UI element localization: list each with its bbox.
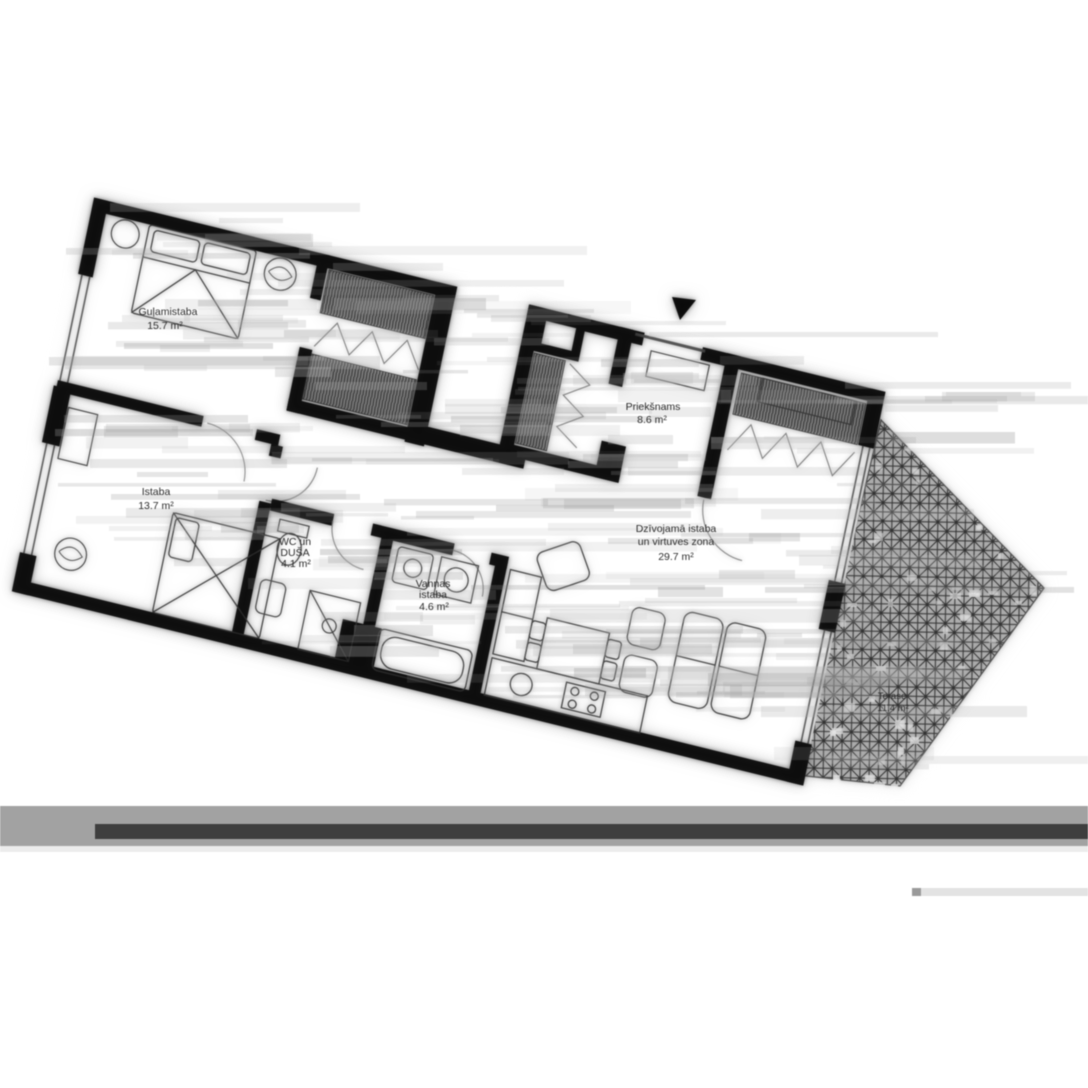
svg-text:un virtuves zona: un virtuves zona bbox=[638, 536, 715, 548]
svg-text:Terase: Terase bbox=[878, 691, 907, 702]
svg-text:Istaba: Istaba bbox=[142, 486, 171, 498]
svg-text:29.7 m²: 29.7 m² bbox=[658, 551, 694, 563]
svg-text:11.4 m²: 11.4 m² bbox=[877, 703, 909, 714]
svg-text:4.6 m²: 4.6 m² bbox=[419, 601, 449, 613]
svg-text:Dzīvojamā istaba: Dzīvojamā istaba bbox=[636, 523, 717, 535]
svg-text:4.1 m²: 4.1 m² bbox=[281, 558, 311, 570]
svg-text:Priekšnams: Priekšnams bbox=[626, 401, 681, 413]
svg-text:13.7 m²: 13.7 m² bbox=[138, 500, 174, 512]
svg-text:Guļamistaba: Guļamistaba bbox=[139, 306, 198, 318]
svg-text:8.6 m²: 8.6 m² bbox=[637, 414, 667, 426]
svg-text:istaba: istaba bbox=[419, 589, 447, 601]
svg-text:15.7 m²: 15.7 m² bbox=[147, 320, 183, 332]
